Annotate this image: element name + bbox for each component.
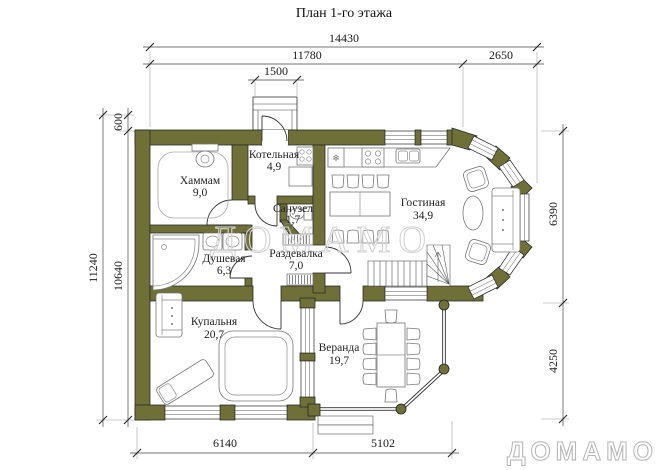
room-area-kotelnaya: 4,9 [267, 161, 282, 173]
room-label-gostinaya: Гостиная [401, 197, 446, 209]
brand-logo: ДОМАМО [507, 436, 658, 466]
sofa-icon [492, 188, 520, 252]
armchair-icon [464, 238, 492, 266]
dim-bottom-left: 6140 [213, 436, 237, 450]
room-area-razdevalka: 7,0 [289, 260, 304, 272]
floor-plan-page: 14430 11780 2650 1500 11240 600 10640 63… [0, 0, 665, 470]
stove-icon [362, 148, 384, 167]
room-area-gostinaya: 34,9 [413, 210, 433, 222]
dim-bottom-right: 5102 [371, 436, 395, 450]
room-area-veranda: 19,7 [329, 355, 349, 367]
kitchen-counter-icon: ❄ [328, 148, 450, 167]
room-label-kotelnaya: Котельная [249, 149, 300, 161]
dim-left-inner: 10640 [111, 261, 125, 291]
hammam-sink-icon [196, 151, 214, 167]
room-area-sanuzel: 1,7 [286, 214, 301, 226]
dim-top-total: 14430 [329, 31, 359, 45]
veranda-steps-icon [318, 416, 373, 425]
kupalnya-sofa-icon [156, 293, 182, 337]
room-area-kupalnya: 20,7 [204, 329, 224, 341]
page-title: План 1-го этажа [296, 6, 393, 21]
dim-porch: 1500 [264, 64, 288, 78]
room-label-dushevaya: Душевая [202, 253, 246, 265]
dim-right-upper: 6390 [546, 202, 560, 226]
room-area-dushevaya: 6,3 [217, 265, 232, 277]
dim-left-total: 11240 [86, 253, 100, 283]
pool-icon [219, 331, 293, 401]
room-label-veranda: Веранда [319, 342, 360, 354]
dim-left-wall: 600 [111, 113, 125, 131]
entry-porch [253, 97, 297, 130]
coffee-table-icon [463, 196, 483, 230]
armchair-icon [462, 165, 490, 193]
shower-icon [153, 235, 199, 290]
room-area-hammam: 9,0 [193, 187, 208, 199]
room-label-kupalnya: Купальня [191, 316, 238, 328]
floor-plan-canvas: 14430 11780 2650 1500 11240 600 10640 63… [0, 0, 665, 470]
room-label-razdevalka: Раздевалка [269, 248, 323, 260]
lounger-icon [155, 358, 215, 406]
room-label-hammam: Хаммам [180, 175, 221, 187]
dim-top-main: 11780 [292, 48, 322, 62]
dim-right-lower: 4250 [546, 349, 560, 373]
veranda-table-icon [363, 310, 420, 402]
fridge-icon: ❄ [332, 153, 340, 163]
boiler-table-icon [289, 167, 312, 186]
dim-top-right: 2650 [489, 48, 513, 62]
